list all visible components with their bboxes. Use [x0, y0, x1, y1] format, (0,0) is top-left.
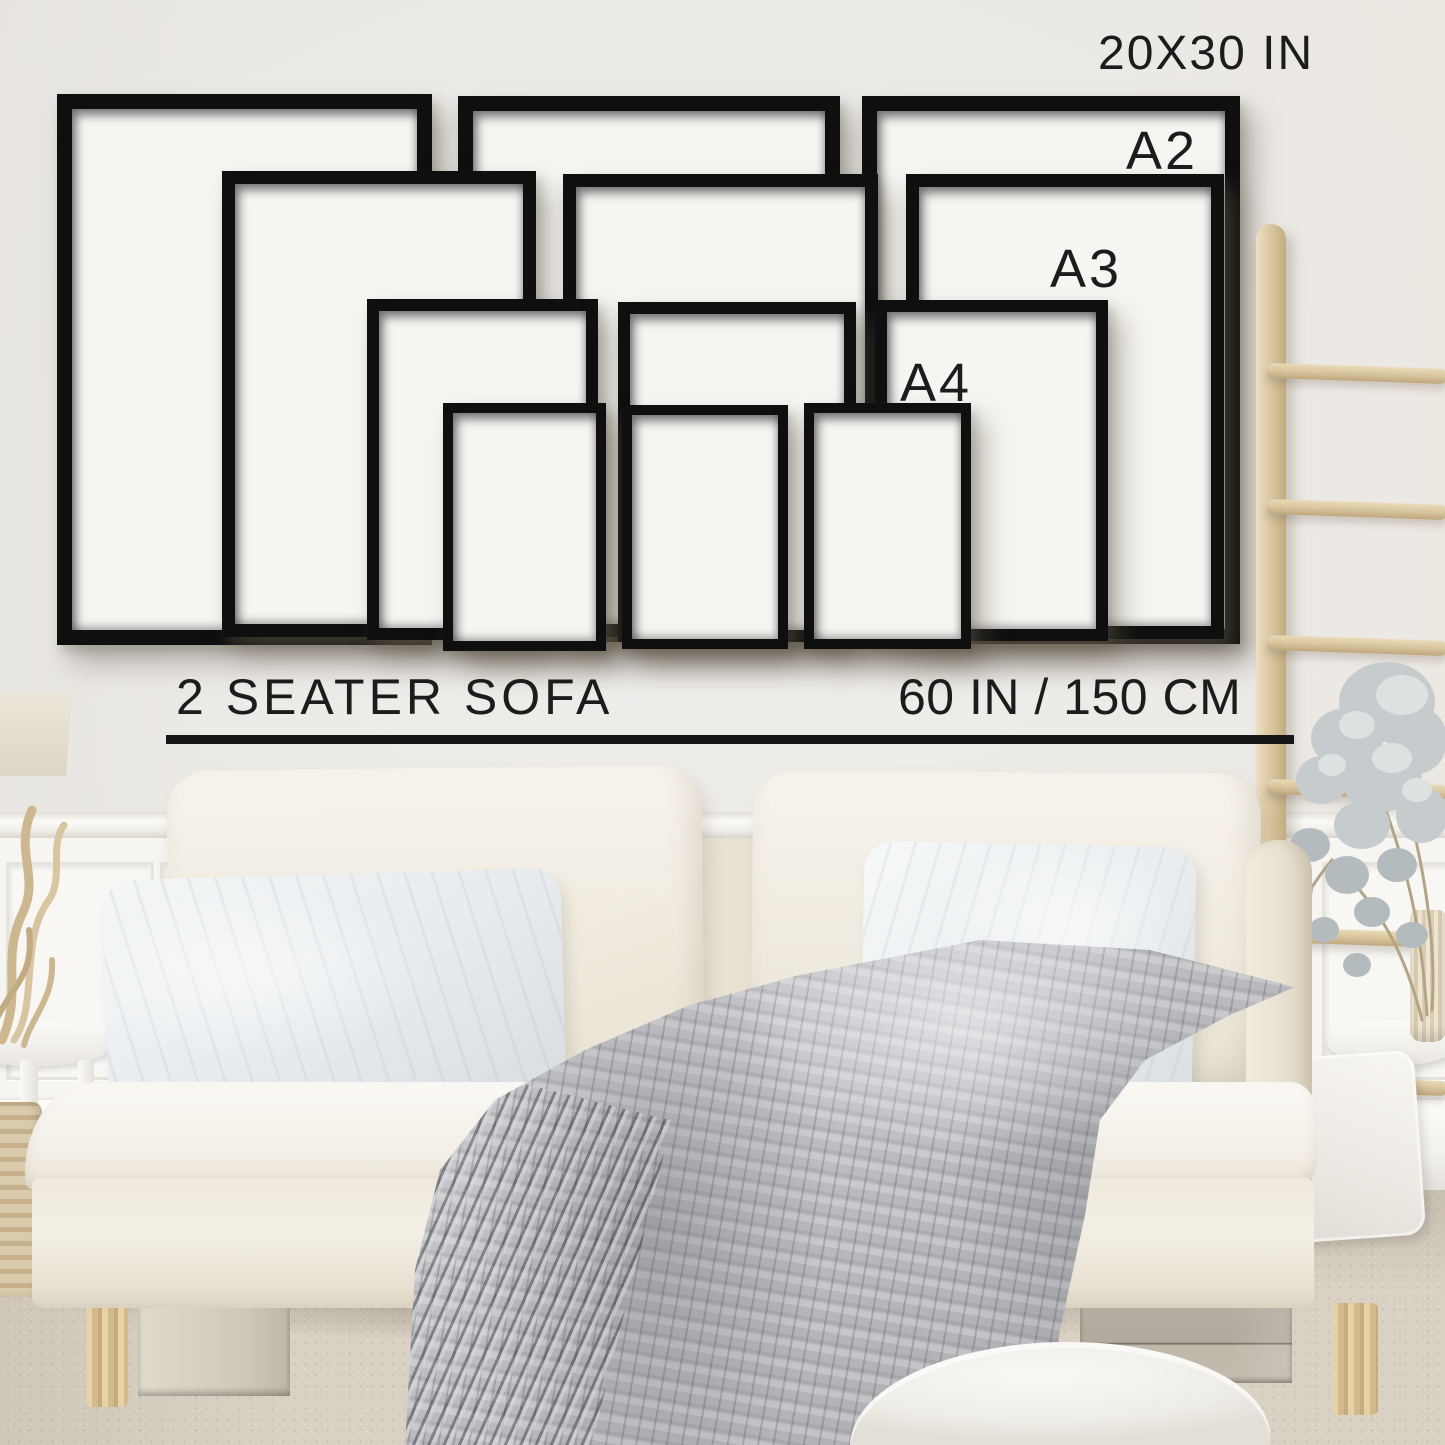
sofa-width-label: 60 IN / 150 CM — [898, 672, 1241, 722]
room-scene: 20X30 INA2A3A4 — [0, 0, 1445, 1445]
sofa-width-annotation: 2 SEATER SOFA 60 IN / 150 CM — [0, 0, 1445, 1445]
sofa-label: 2 SEATER SOFA — [176, 672, 613, 722]
sofa-width-line — [166, 735, 1294, 744]
